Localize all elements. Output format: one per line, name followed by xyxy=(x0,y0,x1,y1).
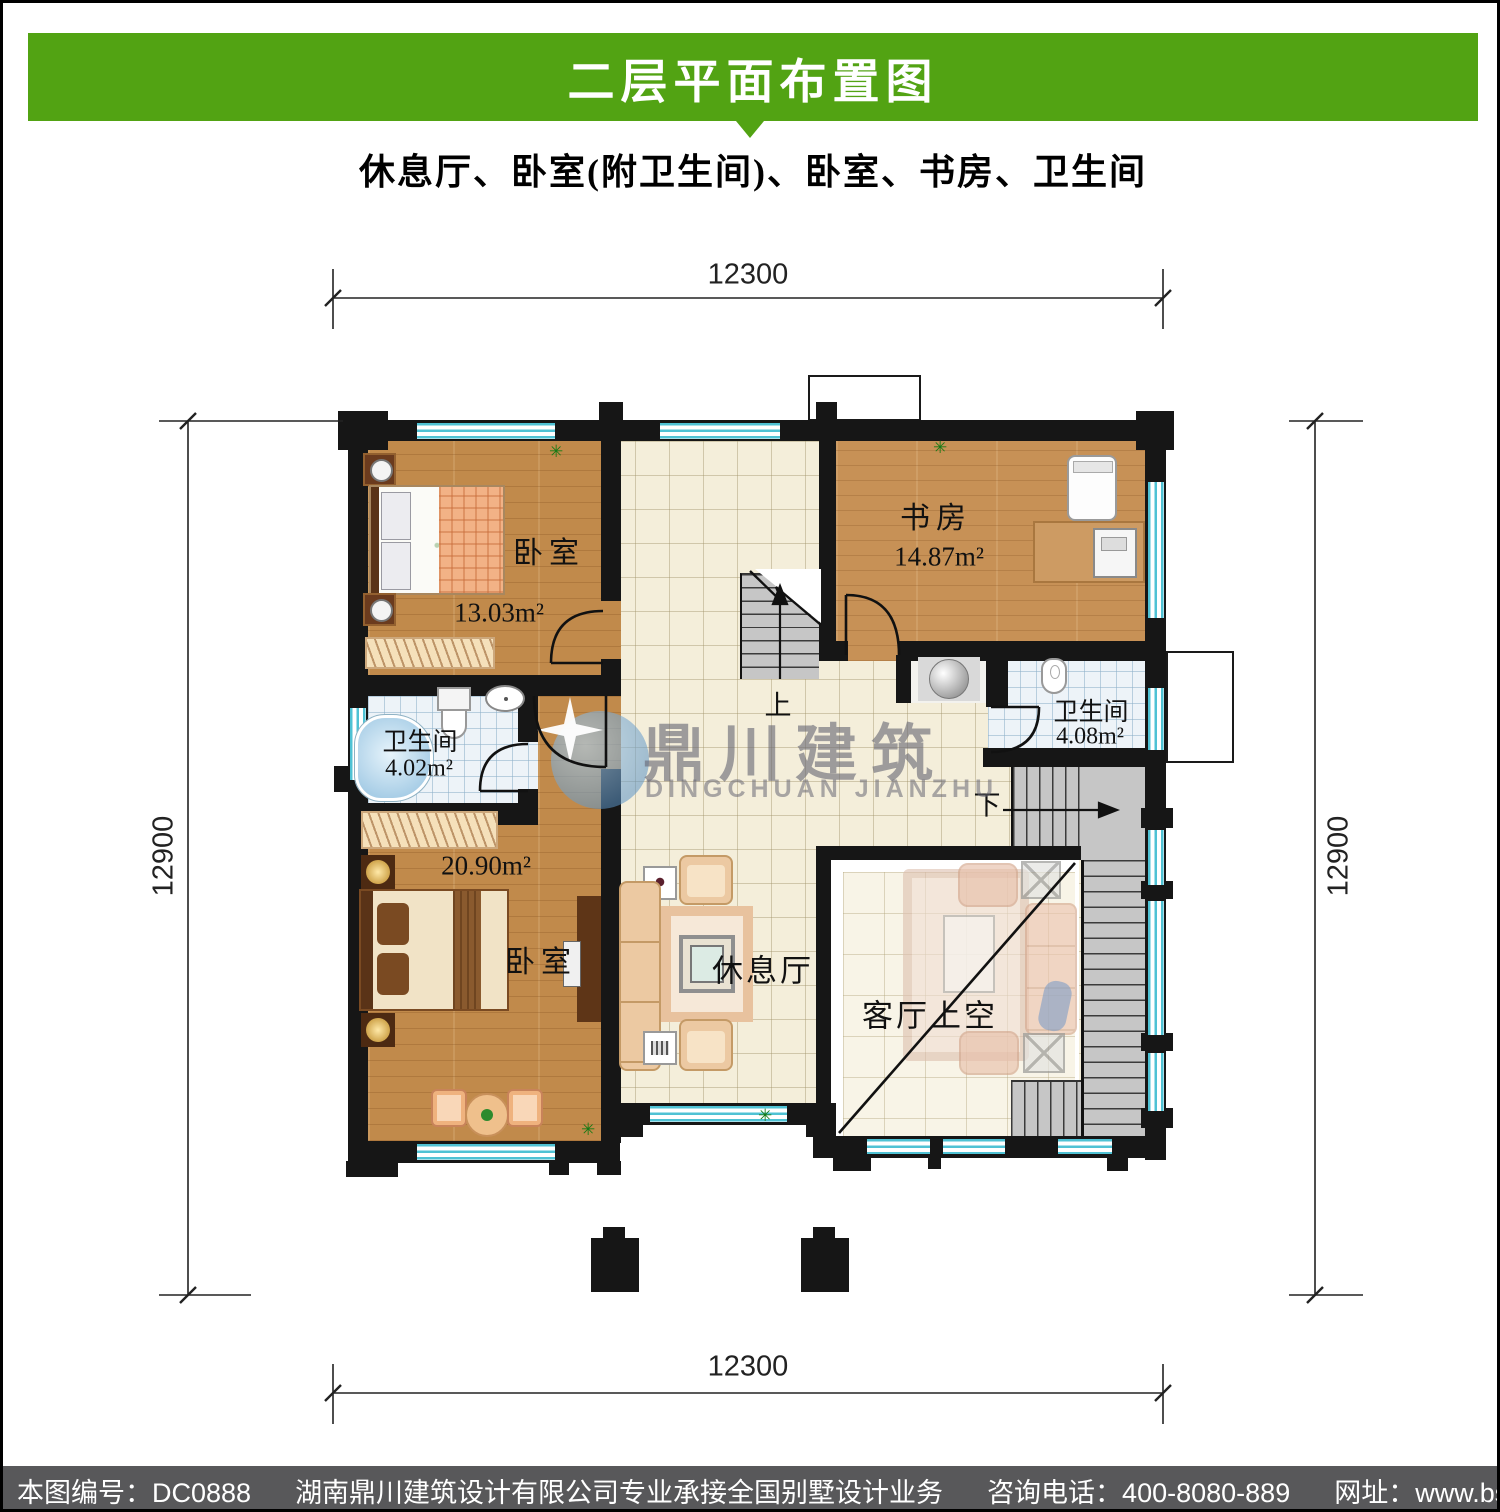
armchair xyxy=(679,855,733,905)
pillar-lounge-stub2 xyxy=(806,1123,833,1137)
pillar-top-left xyxy=(338,411,388,450)
pillar-top-mid2 xyxy=(816,402,837,421)
stair-down-main-flight xyxy=(1081,860,1146,1136)
lamp-icon xyxy=(361,855,395,889)
page: 二层平面布置图 休息厅、卧室(附卫生间)、卧室、书房、卫生间 xyxy=(0,0,1500,1512)
wall-study-bottom-a xyxy=(836,641,848,661)
nightstand-lamp-icon xyxy=(363,453,396,486)
bath-left-label: 卫生间 xyxy=(382,722,457,758)
ghost-armchair-top xyxy=(958,863,1018,907)
study-label: 书房 xyxy=(900,493,972,537)
round-basin-icon xyxy=(929,659,969,699)
void-label: 客厅上空 xyxy=(862,991,998,1036)
plant-icon xyxy=(758,1107,776,1125)
lounge-label: 休息厅 xyxy=(712,946,814,991)
bedroom-top-label: 卧室 xyxy=(513,528,585,572)
ghost-coffee-table xyxy=(943,915,995,993)
window-right-bath xyxy=(1148,686,1164,752)
ghost-side-table-top xyxy=(1021,861,1061,899)
pillar-right-r1 xyxy=(1141,808,1173,828)
bedroom-bottom-label: 卧室 xyxy=(505,937,577,981)
wardrobe-top-bedroom xyxy=(365,637,495,669)
porch-column-left-notch xyxy=(603,1227,625,1240)
plant-icon xyxy=(581,1121,599,1139)
porch-column-right-notch xyxy=(813,1227,835,1240)
desk-chair xyxy=(1067,455,1117,521)
nightstand-lamp-icon xyxy=(363,593,396,626)
company-name: 湖南鼎川建筑设计有限公司专业承接全国别墅设计业务 xyxy=(295,1471,943,1510)
pillar-void-stub3 xyxy=(1107,1153,1128,1171)
window-bottom-void1 xyxy=(865,1139,932,1154)
dim-bottom: 12300 xyxy=(708,1351,789,1384)
window-top-bedroom xyxy=(415,423,557,439)
wall-niche-left xyxy=(896,655,911,703)
porch-column-left xyxy=(591,1238,639,1292)
pillar-void-stub2 xyxy=(928,1156,941,1169)
sink-icon xyxy=(485,685,525,712)
drawing-code: 本图编号：DC0888 xyxy=(17,1471,251,1510)
urinal-icon xyxy=(1041,658,1067,694)
toilet-icon xyxy=(437,687,471,711)
window-top-hall xyxy=(658,423,782,439)
wall-under-bedroom-top xyxy=(348,675,621,696)
window-bottom-void2 xyxy=(941,1139,1007,1154)
window-right-stair1 xyxy=(1148,828,1164,887)
plant-icon xyxy=(549,443,567,461)
study-area: 14.87m² xyxy=(894,542,984,573)
pillar-bottom-left xyxy=(346,1161,398,1177)
bath-left-area: 4.02m² xyxy=(385,756,453,783)
floor-plan: 卧室 13.03m² 书房 14.87m² 卫生间 4.02m² 卫生间 4.0… xyxy=(3,3,1500,1512)
ghost-side-table-bottom xyxy=(1023,1033,1065,1073)
watermark-en: DINGCHUAN JIANZHU xyxy=(645,775,1065,804)
stair-up-flight xyxy=(740,573,819,679)
pillar-bottom-b2 xyxy=(549,1161,569,1175)
dim-left: 12900 xyxy=(148,816,181,897)
side-chair xyxy=(507,1089,543,1127)
watermark-star-icon xyxy=(535,695,605,765)
ghost-armchair-bottom xyxy=(959,1031,1019,1075)
stair-down-landing xyxy=(1081,767,1146,860)
window-bottom-bedroom xyxy=(415,1144,557,1160)
window-right-stair3 xyxy=(1148,1051,1164,1113)
wall-bath-right-left xyxy=(986,655,1008,707)
window-bottom-void3 xyxy=(1056,1139,1114,1154)
plant-icon xyxy=(933,439,951,457)
wall-study-left xyxy=(819,441,836,661)
window-right-study xyxy=(1148,480,1164,620)
pillar-left-mid xyxy=(334,766,348,792)
website-url: 网址：www.bstzcs.com xyxy=(1334,1471,1500,1510)
pillar-lounge-stub1 xyxy=(616,1123,643,1137)
bed-bottom xyxy=(359,889,509,1011)
wardrobe-bottom-bedroom xyxy=(361,811,498,849)
lamp-icon xyxy=(361,1013,395,1047)
bath-right-area: 4.08m² xyxy=(1056,724,1124,751)
side-chair xyxy=(431,1089,467,1127)
pillar-top-right xyxy=(1136,411,1174,450)
bedroom-bottom-area: 20.90m² xyxy=(441,851,531,882)
bedroom-top-area: 13.03m² xyxy=(454,598,544,629)
dim-right: 12900 xyxy=(1323,816,1356,897)
phone-number: 咨询电话：400-8080-889 xyxy=(987,1471,1290,1510)
round-table xyxy=(465,1093,509,1137)
study-desk xyxy=(1033,521,1145,583)
dim-top: 12300 xyxy=(708,259,789,292)
wall-void-left xyxy=(816,846,831,1136)
window-right-stair2 xyxy=(1148,899,1164,1037)
right-bay-outline xyxy=(1166,651,1234,763)
footer-bar: 本图编号：DC0888 湖南鼎川建筑设计有限公司专业承接全国别墅设计业务 咨询电… xyxy=(3,1466,1500,1512)
stair-down-bottom-flight xyxy=(1011,1080,1081,1136)
pillar-void-stub1 xyxy=(833,1156,871,1171)
wall-void-top xyxy=(816,846,1081,860)
bed-top xyxy=(369,485,505,595)
av-cabinet xyxy=(643,1031,677,1065)
porch-column-right xyxy=(801,1238,849,1292)
armchair xyxy=(679,1019,733,1071)
pillar-top-mid1 xyxy=(599,402,623,421)
pillar-bottom-b3 xyxy=(597,1161,621,1175)
wall-bedroom-top-right-a xyxy=(601,441,621,601)
wall-bedroom-bottom-right xyxy=(601,769,621,1143)
